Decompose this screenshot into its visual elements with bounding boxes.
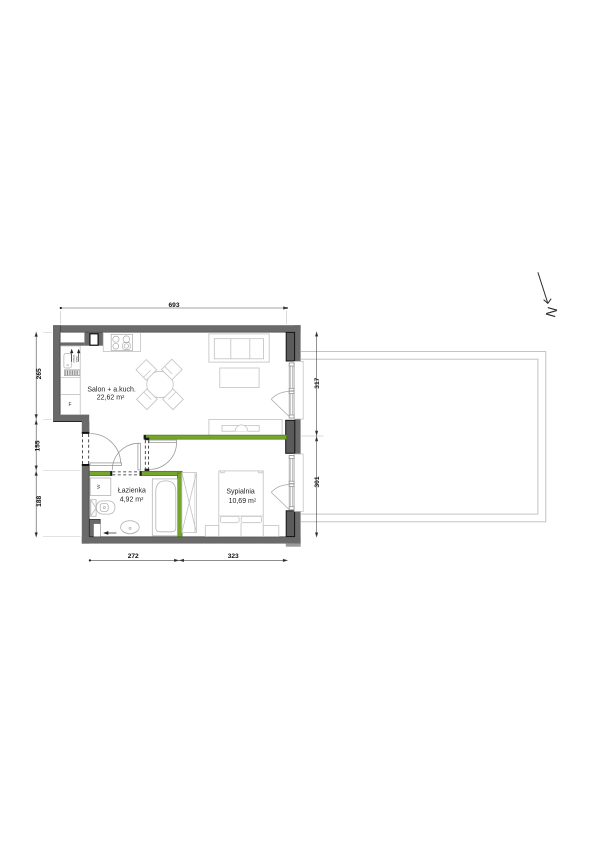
svg-text:265: 265 (36, 368, 43, 379)
svg-text:272: 272 (128, 553, 139, 560)
svg-text:Sypialnia: Sypialnia (226, 489, 255, 496)
svg-text:4,92 m2: 4,92 m2 (120, 496, 144, 504)
svg-text:301: 301 (314, 476, 321, 487)
svg-text:10,69 m2: 10,69 m2 (229, 497, 257, 505)
svg-text:Salon + a.kuch.: Salon + a.kuch. (87, 386, 136, 393)
svg-text:Łazienka: Łazienka (118, 487, 146, 494)
svg-text:W: W (96, 484, 101, 489)
svg-text:323: 323 (228, 553, 239, 560)
svg-text:155: 155 (34, 440, 41, 451)
svg-text:F: F (68, 402, 71, 408)
svg-text:693: 693 (168, 302, 179, 309)
svg-text:317: 317 (314, 377, 321, 388)
svg-text:188: 188 (36, 495, 43, 506)
svg-text:zlew.: zlew. (74, 356, 78, 363)
svg-text:22,62 m2: 22,62 m2 (97, 394, 125, 402)
